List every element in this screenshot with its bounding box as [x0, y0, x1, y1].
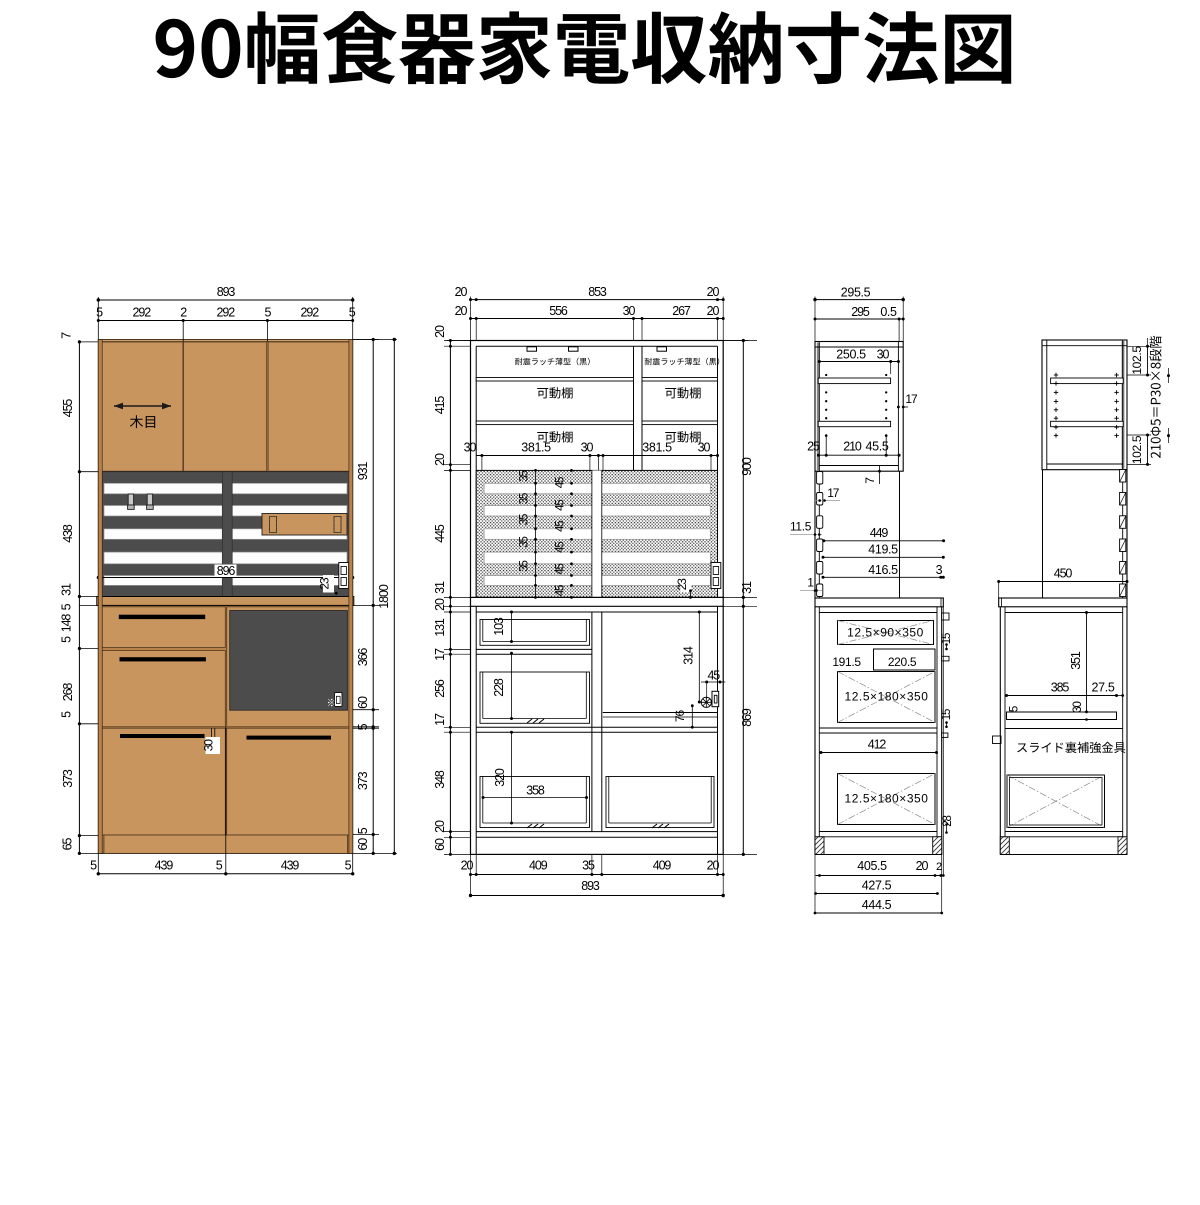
svg-text:103: 103	[492, 617, 506, 636]
svg-text:896: 896	[217, 564, 236, 578]
svg-text:17: 17	[827, 486, 840, 500]
svg-text:444.5: 444.5	[862, 898, 892, 912]
svg-text:20: 20	[461, 859, 474, 873]
svg-text:15: 15	[941, 709, 953, 720]
svg-text:17: 17	[433, 648, 447, 661]
svg-text:12.5×90×350: 12.5×90×350	[847, 626, 924, 640]
svg-text:45: 45	[555, 477, 567, 488]
svg-text:35: 35	[519, 471, 531, 482]
svg-text:256: 256	[433, 679, 447, 698]
svg-text:427.5: 427.5	[862, 879, 892, 893]
svg-text:35: 35	[582, 859, 595, 873]
svg-text:102.5: 102.5	[1130, 435, 1144, 464]
svg-text:65: 65	[60, 838, 74, 851]
svg-text:60: 60	[356, 696, 370, 709]
svg-text:314: 314	[681, 646, 695, 665]
svg-text:210: 210	[843, 440, 862, 454]
svg-text:416.5: 416.5	[868, 563, 898, 577]
svg-text:45: 45	[555, 500, 567, 511]
svg-text:409: 409	[529, 859, 548, 873]
svg-text:20: 20	[433, 453, 447, 466]
svg-text:23: 23	[675, 578, 689, 591]
svg-text:45: 45	[555, 585, 567, 596]
svg-text:15: 15	[941, 633, 953, 644]
svg-text:45: 45	[555, 542, 567, 553]
svg-text:20: 20	[455, 304, 468, 318]
svg-text:455: 455	[61, 399, 75, 418]
svg-text:292: 292	[301, 306, 320, 320]
svg-text:28: 28	[942, 816, 954, 827]
svg-text:438: 438	[61, 524, 75, 543]
svg-text:445: 445	[433, 524, 447, 543]
svg-text:415: 415	[433, 396, 447, 415]
svg-text:27.5: 27.5	[1092, 681, 1115, 695]
svg-text:268: 268	[61, 683, 75, 702]
svg-text:295.5: 295.5	[841, 286, 871, 300]
svg-text:439: 439	[155, 859, 174, 873]
svg-text:20: 20	[707, 304, 720, 318]
svg-text:250.5: 250.5	[836, 348, 866, 362]
svg-text:0.5: 0.5	[880, 305, 897, 319]
svg-text:35: 35	[519, 537, 531, 548]
svg-text:30: 30	[698, 441, 711, 455]
svg-text:17: 17	[433, 713, 447, 726]
svg-text:35: 35	[519, 514, 531, 525]
svg-text:385: 385	[1051, 681, 1070, 695]
svg-text:450: 450	[1054, 567, 1073, 581]
svg-text:381.5: 381.5	[642, 441, 672, 455]
svg-text:30: 30	[877, 348, 890, 362]
svg-text:30: 30	[464, 441, 477, 455]
svg-text:45: 45	[707, 668, 720, 682]
svg-text:295: 295	[851, 305, 870, 319]
svg-text:17: 17	[905, 392, 918, 406]
svg-text:131: 131	[433, 618, 447, 637]
svg-text:25: 25	[807, 440, 820, 454]
svg-text:30: 30	[623, 304, 636, 318]
svg-text:23: 23	[318, 577, 332, 590]
svg-text:20: 20	[433, 325, 447, 338]
svg-text:412: 412	[868, 738, 887, 752]
svg-text:148: 148	[60, 614, 74, 633]
svg-text:409: 409	[653, 859, 672, 873]
svg-text:31: 31	[60, 583, 74, 596]
svg-text:30: 30	[581, 441, 594, 455]
svg-text:366: 366	[356, 648, 370, 667]
svg-text:419.5: 419.5	[868, 543, 898, 557]
svg-text:45: 45	[555, 564, 567, 575]
svg-text:30: 30	[202, 739, 216, 752]
svg-text:31: 31	[433, 581, 447, 594]
svg-text:373: 373	[356, 771, 370, 790]
svg-text:373: 373	[61, 769, 75, 788]
svg-text:348: 348	[433, 770, 447, 789]
svg-text:35: 35	[519, 493, 531, 504]
svg-text:292: 292	[133, 306, 152, 320]
svg-text:556: 556	[549, 304, 568, 318]
svg-text:11.5: 11.5	[790, 520, 812, 534]
svg-text:60: 60	[433, 838, 447, 851]
svg-text:12.5×180×350: 12.5×180×350	[844, 690, 928, 704]
svg-text:228: 228	[492, 678, 506, 697]
svg-text:449: 449	[870, 526, 889, 540]
svg-text:20: 20	[433, 820, 447, 833]
svg-text:20: 20	[916, 859, 929, 873]
svg-text:292: 292	[217, 306, 236, 320]
svg-text:853: 853	[588, 285, 607, 299]
svg-text:220.5: 220.5	[888, 655, 917, 669]
svg-text:31: 31	[740, 581, 754, 594]
svg-text:45.5: 45.5	[866, 440, 889, 454]
svg-text:5: 5	[1009, 706, 1021, 712]
svg-text:381.5: 381.5	[521, 441, 551, 455]
svg-text:20: 20	[707, 285, 720, 299]
svg-text:358: 358	[526, 784, 545, 798]
svg-text:439: 439	[281, 859, 300, 873]
svg-text:20: 20	[433, 598, 447, 611]
svg-text:1800: 1800	[377, 584, 391, 609]
svg-text:102.5: 102.5	[1130, 346, 1144, 375]
svg-text:60: 60	[356, 838, 370, 851]
svg-text:869: 869	[740, 708, 754, 727]
svg-text:320: 320	[493, 768, 507, 787]
svg-text:351: 351	[1069, 651, 1083, 670]
svg-text:931: 931	[356, 462, 370, 481]
svg-text:893: 893	[581, 879, 600, 893]
svg-text:76: 76	[673, 710, 687, 723]
svg-text:267: 267	[672, 304, 691, 318]
svg-text:45: 45	[555, 521, 567, 532]
svg-text:893: 893	[217, 285, 236, 299]
svg-text:900: 900	[740, 457, 754, 476]
svg-text:20: 20	[455, 285, 468, 299]
svg-text:191.5: 191.5	[832, 655, 861, 669]
svg-text:30: 30	[1072, 702, 1084, 713]
svg-text:12.5×180×350: 12.5×180×350	[844, 792, 928, 806]
svg-text:35: 35	[519, 561, 531, 572]
svg-text:405.5: 405.5	[857, 859, 887, 873]
